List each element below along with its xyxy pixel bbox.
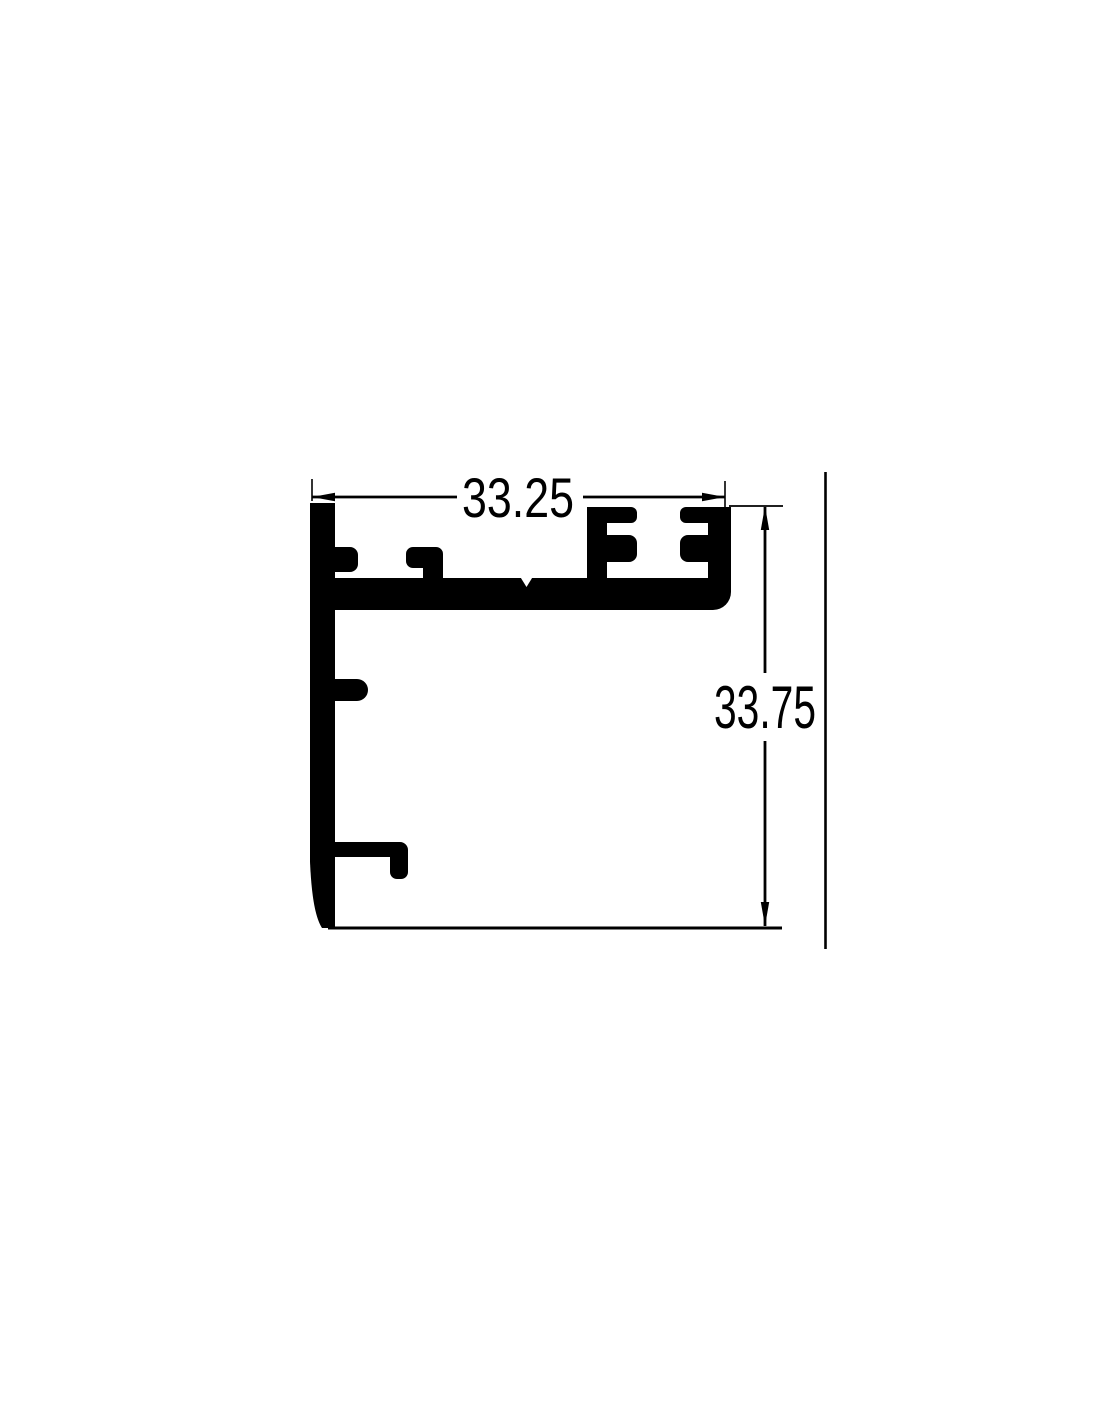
dimension-width: 33.25 (312, 466, 725, 529)
profile-tab-left (335, 547, 358, 572)
drawing-sheet: 33.25 33.75 (0, 0, 1100, 1422)
profile-top-web (310, 578, 731, 610)
width-arrow-right-icon (702, 493, 725, 501)
width-arrow-left-icon (312, 493, 335, 501)
screw-channel-left-mid-tooth (587, 535, 637, 562)
screw-channel-left-top-tooth (587, 507, 637, 523)
profile-hook-on-web (406, 547, 443, 583)
profile-drawing-canvas: 33.25 33.75 (0, 0, 1100, 1422)
profile-mid-nub (335, 679, 368, 701)
height-arrow-down-icon (761, 902, 769, 926)
width-dimension-value: 33.25 (462, 466, 574, 529)
profile-bottom-hook (335, 842, 408, 879)
profile-left-wall (310, 503, 335, 928)
extrusion-profile-section (310, 503, 731, 928)
screw-channel-right-mid-tooth (680, 535, 731, 562)
height-dimension-value: 33.75 (714, 674, 816, 741)
height-arrow-up-icon (761, 506, 769, 530)
screw-channel-right-top-tooth (680, 507, 731, 523)
